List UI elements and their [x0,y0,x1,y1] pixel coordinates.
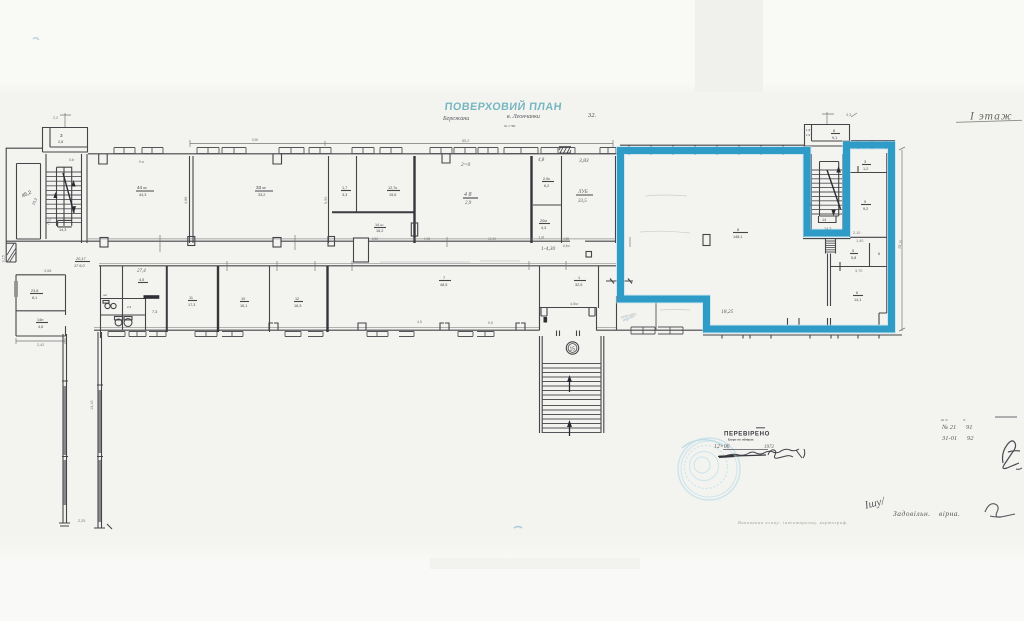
svg-text:ПЕРЕВІРЕНО: ПЕРЕВІРЕНО [724,431,770,438]
svg-text:2,8: 2,8 [58,140,63,144]
svg-text:14н: 14н [37,318,43,322]
svg-text:33,2: 33,2 [258,193,265,197]
svg-text:м. с-ка: м. с-ка [503,123,515,128]
svg-text:5,90: 5,90 [252,138,258,142]
svg-text:32.: 32. [587,112,597,119]
svg-text:4,6: 4,6 [38,325,43,329]
svg-text:1,2: 1,2 [863,167,868,171]
svg-text:27,4: 27,4 [137,269,146,274]
svg-text:6: 6 [878,252,880,256]
svg-text:91: 91 [966,424,973,431]
svg-text:12,40: 12,40 [488,237,496,241]
svg-text:4,5: 4,5 [417,320,422,324]
svg-text:31-01: 31-01 [941,435,957,442]
svg-text:12: 12 [295,297,299,301]
svg-text:8,4м: 8,4м [563,244,570,248]
svg-text:№ 21: № 21 [941,424,956,431]
svg-text:44 м²: 44 м² [137,185,148,190]
svg-text:9,2: 9,2 [863,207,868,211]
svg-text:1,7: 1,7 [342,186,347,190]
svg-text:8,4г: 8,4г [69,158,75,162]
svg-text:3: 3 [864,160,866,164]
svg-text:48,5: 48,5 [440,283,447,287]
svg-text:148,1: 148,1 [733,235,743,239]
svg-text:2,25: 2,25 [78,519,85,523]
svg-text:5,95: 5,95 [324,197,328,204]
svg-text:17,3: 17,3 [188,303,195,307]
svg-text:15: 15 [570,347,576,353]
svg-text:5: 5 [852,249,854,253]
svg-text:10: 10 [241,297,245,301]
svg-text:14: 14 [822,218,826,222]
svg-text:1,9: 1,9 [806,133,811,137]
svg-text:4,6м: 4,6м [570,302,578,306]
svg-text:ч.: ч. [963,417,966,422]
svg-text:Задовільн. вірна.: Задовільн. вірна. [893,509,960,518]
svg-text:6,2: 6,2 [544,184,549,188]
svg-text:1,95: 1,95 [424,237,430,241]
svg-text:1,40: 1,40 [856,239,863,243]
svg-text:17 6,0: 17 6,0 [74,264,85,268]
svg-text:8: 8 [833,129,835,133]
svg-text:20м: 20м [540,219,547,223]
svg-text:шл: шл [103,293,107,297]
svg-text:ЛУБ: ЛУБ [577,190,588,195]
svg-text:4,88: 4,88 [184,197,188,204]
svg-text:8,50: 8,50 [372,237,378,241]
svg-text:Виконання плану: інвентариза: Виконання плану: інвентаризац. картограф… [738,520,848,525]
svg-text:3,3: 3,3 [342,193,347,197]
svg-text:92: 92 [967,435,974,442]
svg-text:16,1: 16,1 [240,304,247,308]
svg-text:15,6: 15,6 [389,193,396,197]
svg-text:32,5: 32,5 [575,283,582,287]
svg-text:20,17: 20,17 [75,257,86,261]
svg-text:11: 11 [189,296,193,300]
svg-text:33 м²: 33 м² [256,185,267,190]
svg-text:9 м: 9 м [139,160,144,164]
svg-text:14,1: 14,1 [854,298,861,302]
svg-text:33,5: 33,5 [578,199,587,204]
svg-text:44,3: 44,3 [139,193,146,197]
svg-text:3,70: 3,70 [855,269,862,273]
svg-text:85,2: 85,2 [462,139,469,143]
svg-text:ПОВЕРХОВИЙ ПЛАН: ПОВЕРХОВИЙ ПЛАН [444,100,562,113]
svg-text:16,3: 16,3 [294,304,301,308]
svg-text:8,1: 8,1 [32,296,37,300]
svg-text:м. ч.: м. ч. [940,417,948,422]
svg-text:23,8: 23,8 [31,289,38,293]
svg-text:1-4,30: 1-4,30 [541,245,555,252]
svg-text:7,3: 7,3 [152,310,157,314]
svg-text:2,9: 2,9 [465,201,472,206]
svg-text:3,68: 3,68 [44,269,51,273]
svg-text:16,2: 16,2 [376,229,383,233]
svg-text:3,15: 3,15 [2,255,6,262]
svg-text:2,42: 2,42 [37,343,44,347]
svg-text:2,3: 2,3 [127,305,132,309]
svg-text:2=0: 2=0 [461,162,470,168]
svg-text:2,10: 2,10 [853,231,860,235]
svg-text:5,8: 5,8 [488,321,493,325]
svg-text:9: 9 [864,200,866,204]
svg-text:Бюро по обмірах: Бюро по обмірах [728,438,754,442]
svg-text:3,83: 3,83 [578,158,589,164]
svg-text:2,9к: 2,9к [543,177,550,181]
svg-text:3: 3 [60,133,63,138]
svg-text:4,8: 4,8 [538,158,545,163]
svg-text:14 м²: 14 м² [375,223,383,227]
svg-text:9,1: 9,1 [832,136,837,140]
svg-text:4,5: 4,5 [139,278,144,282]
svg-text:14,3: 14,3 [59,228,66,232]
svg-text:7: 7 [443,276,445,280]
svg-text:2,2: 2,2 [53,116,58,120]
svg-text:4 8: 4 8 [464,191,472,198]
svg-text:8: 8 [737,228,739,232]
svg-text:в. Леончанки: в. Леончанки [507,114,540,120]
svg-text:3,3: 3,3 [846,113,851,117]
svg-text:18,25: 18,25 [721,309,734,315]
svg-text:5,8: 5,8 [851,256,856,260]
svg-text:1,8: 1,8 [806,128,811,132]
svg-text:4,3: 4,3 [541,226,546,230]
svg-text:1: 1 [578,276,580,280]
svg-text:13,16: 13,16 [90,400,94,410]
svg-text:6: 6 [856,291,858,295]
svg-text:Бережани: Бережани [442,116,469,122]
svg-text:12,7к: 12,7к [388,186,397,190]
